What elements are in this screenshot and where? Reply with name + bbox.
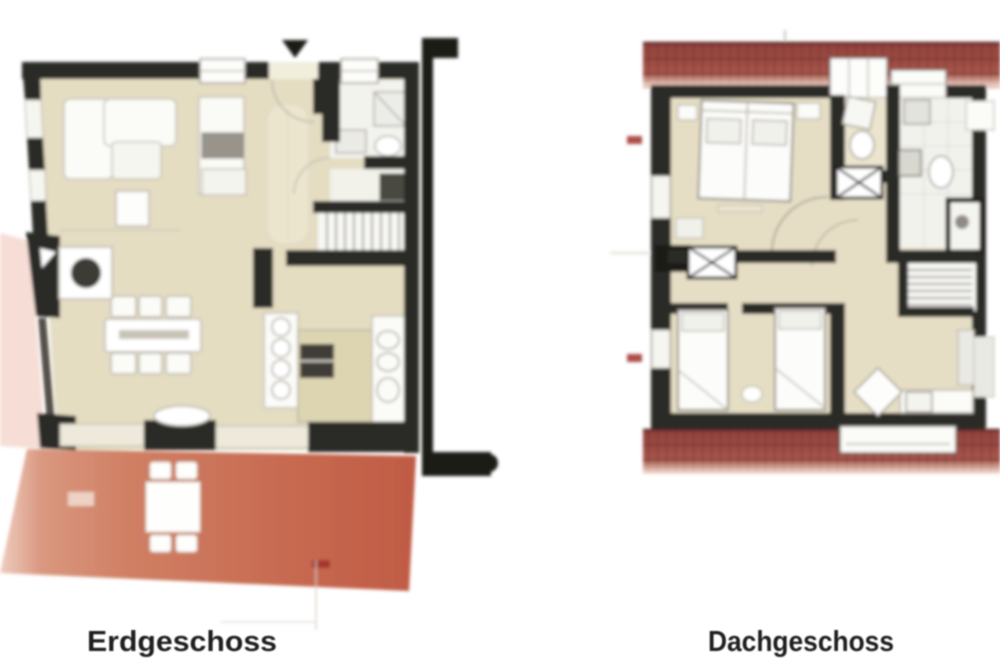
svg-text:Erdgeschoss: Erdgeschoss <box>87 626 277 658</box>
svg-text:Dachgeschoss: Dachgeschoss <box>708 626 894 658</box>
